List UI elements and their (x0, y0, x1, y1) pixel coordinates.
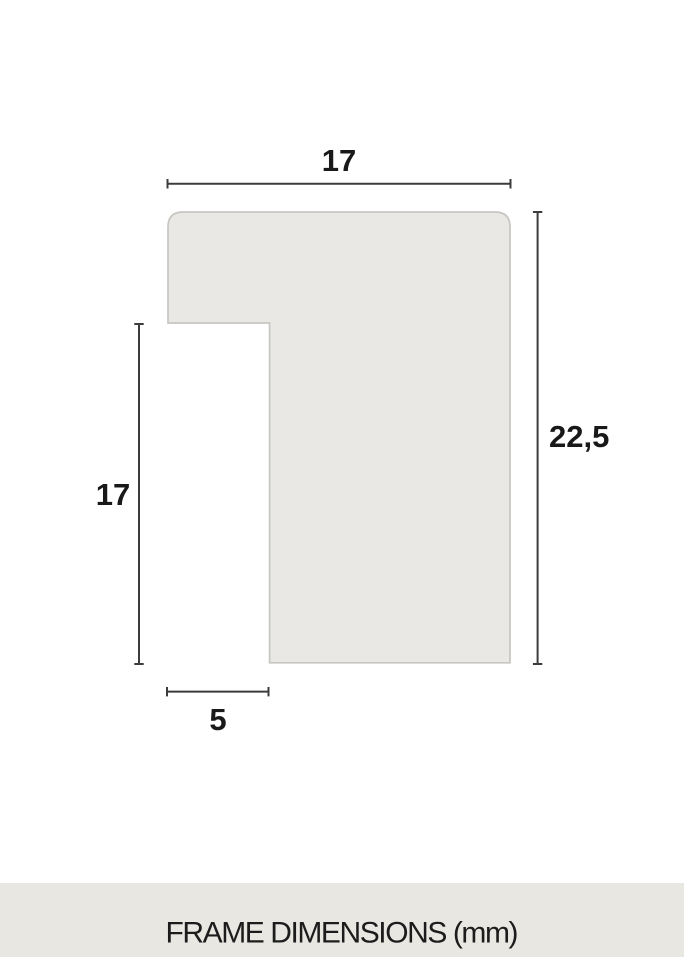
svg-text:17: 17 (322, 143, 356, 178)
svg-text:5: 5 (209, 702, 226, 737)
svg-text:22,5: 22,5 (549, 419, 609, 454)
svg-text:17: 17 (96, 477, 130, 512)
svg-text:FRAME DIMENSIONS (mm): FRAME DIMENSIONS (mm) (166, 917, 519, 950)
